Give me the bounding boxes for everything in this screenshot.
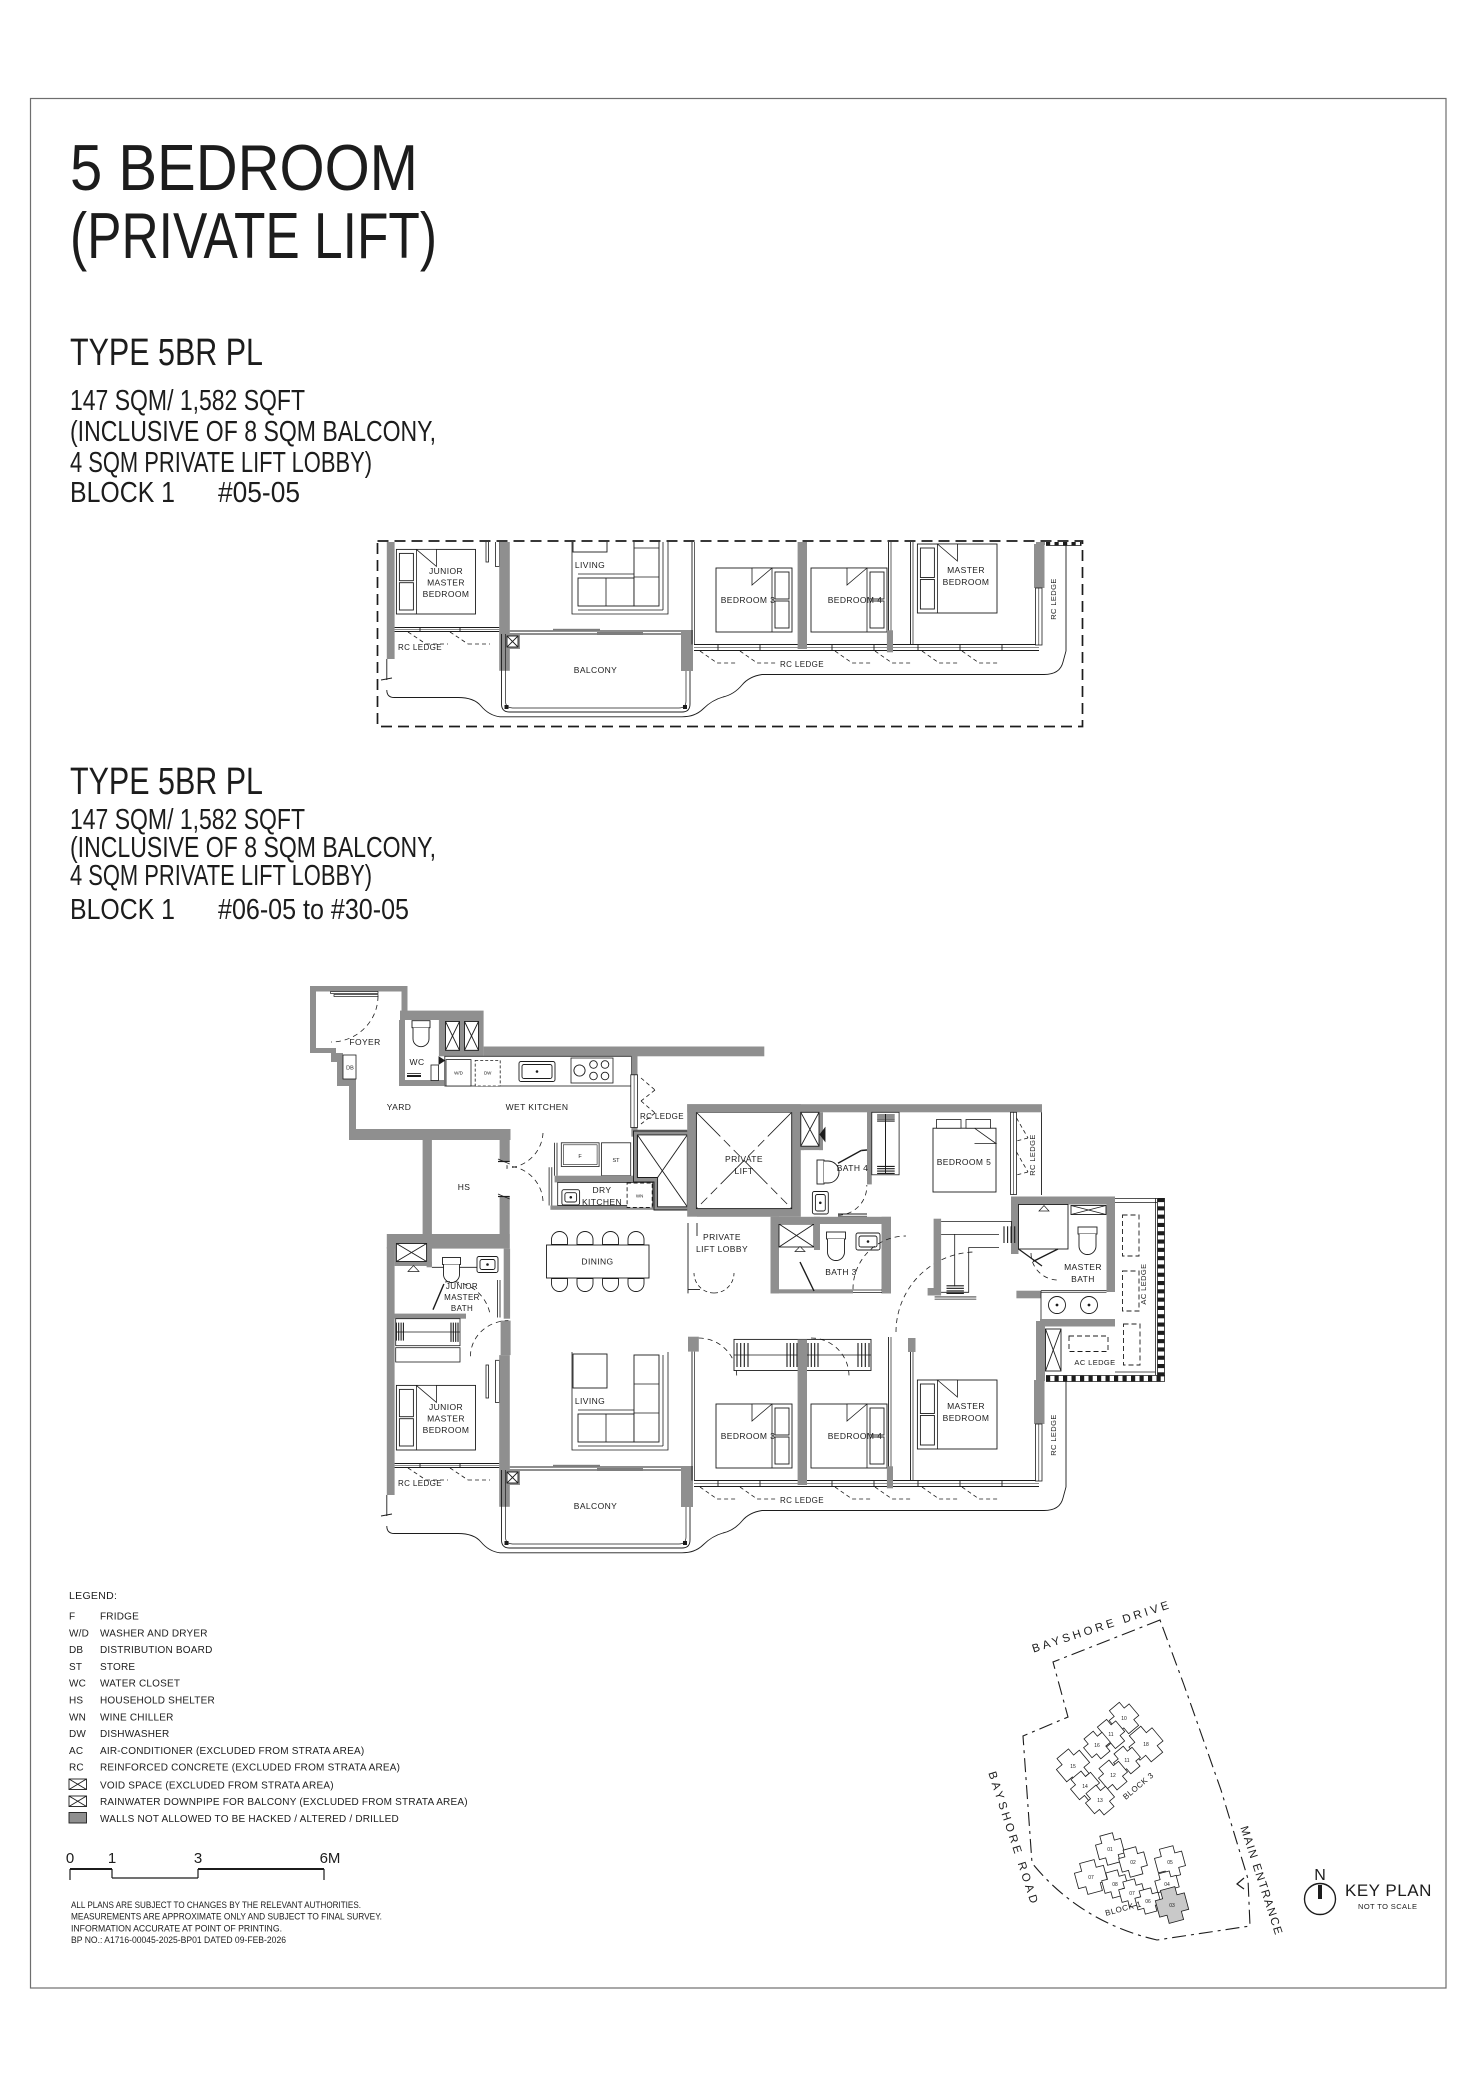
- svg-text:LIFT LOBBY: LIFT LOBBY: [696, 1244, 748, 1254]
- svg-text:WINE CHILLER: WINE CHILLER: [100, 1712, 174, 1723]
- svg-text:BEDROOM 5: BEDROOM 5: [937, 1157, 992, 1167]
- svg-text:4 SQM PRIVATE LIFT LOBBY): 4 SQM PRIVATE LIFT LOBBY): [70, 860, 372, 892]
- svg-text:5 BEDROOM: 5 BEDROOM: [70, 131, 418, 204]
- svg-text:(PRIVATE LIFT): (PRIVATE LIFT): [70, 199, 437, 272]
- svg-text:JUNIOR: JUNIOR: [429, 1402, 463, 1412]
- svg-text:FOYER: FOYER: [349, 1037, 380, 1047]
- svg-text:RAINWATER DOWNPIPE FOR BALCONY: RAINWATER DOWNPIPE FOR BALCONY (EXCLUDED…: [100, 1797, 468, 1808]
- svg-text:TYPE 5BR PL: TYPE 5BR PL: [70, 332, 263, 374]
- svg-text:W/D: W/D: [454, 1071, 463, 1076]
- svg-text:04: 04: [1164, 1882, 1170, 1888]
- svg-text:RC LEDGE: RC LEDGE: [1028, 1134, 1037, 1176]
- svg-text:MASTER: MASTER: [947, 1401, 985, 1411]
- svg-text:4 SQM PRIVATE LIFT LOBBY): 4 SQM PRIVATE LIFT LOBBY): [70, 447, 372, 479]
- svg-text:MEASUREMENTS ARE APPROXIMATE O: MEASUREMENTS ARE APPROXIMATE ONLY AND SU…: [71, 1912, 382, 1922]
- svg-text:WC: WC: [69, 1679, 86, 1690]
- svg-text:KEY PLAN: KEY PLAN: [1345, 1881, 1432, 1900]
- svg-text:NOT TO SCALE: NOT TO SCALE: [1358, 1902, 1417, 1911]
- svg-text:ALL PLANS ARE SUBJECT TO CHANG: ALL PLANS ARE SUBJECT TO CHANGES BY THE …: [71, 1900, 361, 1910]
- svg-text:(INCLUSIVE OF 8 SQM BALCONY,: (INCLUSIVE OF 8 SQM BALCONY,: [70, 416, 436, 448]
- svg-text:BATH: BATH: [1071, 1274, 1095, 1284]
- svg-text:TYPE 5BR PL: TYPE 5BR PL: [70, 761, 263, 803]
- svg-text:WN: WN: [636, 1194, 644, 1199]
- svg-text:DRY: DRY: [593, 1185, 612, 1195]
- svg-text:MASTER: MASTER: [427, 1414, 465, 1424]
- svg-text:BATH 4: BATH 4: [837, 1163, 869, 1173]
- svg-text:F: F: [69, 1612, 75, 1623]
- svg-text:08: 08: [1112, 1882, 1118, 1888]
- svg-text:06: 06: [1145, 1899, 1151, 1905]
- svg-text:DB: DB: [69, 1645, 83, 1656]
- svg-text:BATH 3: BATH 3: [825, 1267, 857, 1277]
- svg-text:AIR-CONDITIONER (EXCLUDED FROM: AIR-CONDITIONER (EXCLUDED FROM STRATA AR…: [100, 1746, 364, 1757]
- svg-text:02: 02: [1130, 1860, 1136, 1866]
- svg-text:ST: ST: [69, 1662, 82, 1673]
- svg-text:INFORMATION ACCURATE AT POINT: INFORMATION ACCURATE AT POINT OF PRINTIN…: [71, 1923, 282, 1933]
- svg-text:0: 0: [66, 1850, 74, 1867]
- svg-text:18: 18: [1143, 1742, 1149, 1748]
- svg-text:BATH: BATH: [451, 1304, 473, 1313]
- svg-text:KITCHEN: KITCHEN: [582, 1197, 622, 1207]
- svg-text:BEDROOM 3: BEDROOM 3: [721, 1431, 776, 1441]
- svg-text:AC LEDGE: AC LEDGE: [1074, 1358, 1115, 1367]
- svg-text:STORE: STORE: [100, 1662, 135, 1673]
- svg-text:HS: HS: [69, 1696, 83, 1707]
- svg-text:11: 11: [1124, 1758, 1129, 1764]
- svg-text:WASHER AND DRYER: WASHER AND DRYER: [100, 1628, 208, 1639]
- svg-text:RC LEDGE: RC LEDGE: [1049, 1414, 1058, 1456]
- svg-text:WN: WN: [69, 1712, 86, 1723]
- svg-text:LEGEND:: LEGEND:: [69, 1590, 117, 1602]
- svg-text:WATER CLOSET: WATER CLOSET: [100, 1679, 180, 1690]
- svg-text:WC: WC: [410, 1057, 425, 1067]
- svg-text:PRIVATE: PRIVATE: [703, 1232, 741, 1242]
- svg-text:BEDROOM: BEDROOM: [423, 1425, 470, 1435]
- svg-text:#05-05: #05-05: [218, 477, 300, 509]
- svg-text:#06-05 to #30-05: #06-05 to #30-05: [218, 894, 409, 926]
- svg-text:PRIVATE: PRIVATE: [725, 1154, 763, 1164]
- svg-text:RC LEDGE: RC LEDGE: [780, 1496, 824, 1505]
- svg-text:W/D: W/D: [69, 1628, 89, 1639]
- svg-text:DB: DB: [346, 1066, 354, 1072]
- svg-text:BALCONY: BALCONY: [574, 1501, 617, 1511]
- svg-text:HOUSEHOLD SHELTER: HOUSEHOLD SHELTER: [100, 1696, 215, 1707]
- svg-text:RC LEDGE: RC LEDGE: [398, 1479, 442, 1488]
- svg-text:BEDROOM: BEDROOM: [943, 1413, 990, 1423]
- svg-text:07: 07: [1088, 1875, 1094, 1881]
- svg-text:BEDROOM 4: BEDROOM 4: [828, 1431, 883, 1441]
- svg-text:LIVING: LIVING: [575, 1396, 605, 1406]
- svg-text:11: 11: [1108, 1732, 1113, 1738]
- svg-text:DISHWASHER: DISHWASHER: [100, 1729, 169, 1740]
- svg-text:12: 12: [1110, 1773, 1116, 1779]
- svg-text:147 SQM/ 1,582 SQFT: 147 SQM/ 1,582 SQFT: [70, 385, 305, 417]
- svg-text:REINFORCED CONCRETE (EXCLUDED: REINFORCED CONCRETE (EXCLUDED FROM STRAT…: [100, 1763, 400, 1774]
- svg-text:05: 05: [1167, 1860, 1173, 1866]
- svg-text:RC: RC: [69, 1763, 84, 1774]
- svg-text:DW: DW: [484, 1071, 492, 1076]
- svg-text:16: 16: [1094, 1743, 1100, 1749]
- svg-text:AC: AC: [69, 1746, 83, 1757]
- svg-text:10: 10: [1121, 1716, 1127, 1722]
- svg-text:YARD: YARD: [387, 1102, 412, 1112]
- svg-text:01: 01: [1107, 1847, 1113, 1853]
- svg-text:DISTRIBUTION BOARD: DISTRIBUTION BOARD: [100, 1645, 213, 1656]
- svg-text:BLOCK 1: BLOCK 1: [70, 894, 175, 926]
- svg-text:3: 3: [194, 1850, 202, 1867]
- svg-text:VOID SPACE (EXCLUDED FROM STRA: VOID SPACE (EXCLUDED FROM STRATA AREA): [100, 1780, 334, 1791]
- svg-text:LIFT: LIFT: [734, 1166, 753, 1176]
- svg-text:6M: 6M: [320, 1850, 341, 1867]
- svg-text:HS: HS: [458, 1182, 471, 1192]
- svg-text:DINING: DINING: [581, 1257, 613, 1267]
- svg-text:WALLS NOT ALLOWED TO BE HACKED: WALLS NOT ALLOWED TO BE HACKED / ALTERED…: [100, 1814, 399, 1825]
- svg-text:WET KITCHEN: WET KITCHEN: [506, 1102, 569, 1112]
- svg-text:N: N: [1314, 1867, 1326, 1884]
- svg-text:FRIDGE: FRIDGE: [100, 1612, 139, 1623]
- svg-text:BLOCK 1: BLOCK 1: [70, 477, 175, 509]
- svg-text:14: 14: [1082, 1784, 1088, 1790]
- svg-text:AC LEDGE: AC LEDGE: [1139, 1263, 1148, 1304]
- svg-text:MASTER: MASTER: [1064, 1262, 1102, 1272]
- svg-text:03: 03: [1169, 1903, 1175, 1909]
- svg-text:1: 1: [108, 1850, 116, 1867]
- svg-text:DW: DW: [69, 1729, 86, 1740]
- svg-text:13: 13: [1097, 1798, 1103, 1804]
- svg-text:JUNIOR: JUNIOR: [446, 1282, 478, 1291]
- svg-text:15: 15: [1070, 1764, 1076, 1770]
- svg-text:07: 07: [1129, 1891, 1135, 1897]
- svg-text:ST: ST: [612, 1158, 620, 1164]
- svg-text:MASTER: MASTER: [444, 1293, 480, 1302]
- svg-text:BP NO.: A1716-00045-2025-BP01: BP NO.: A1716-00045-2025-BP01 DATED 09-F…: [71, 1935, 286, 1945]
